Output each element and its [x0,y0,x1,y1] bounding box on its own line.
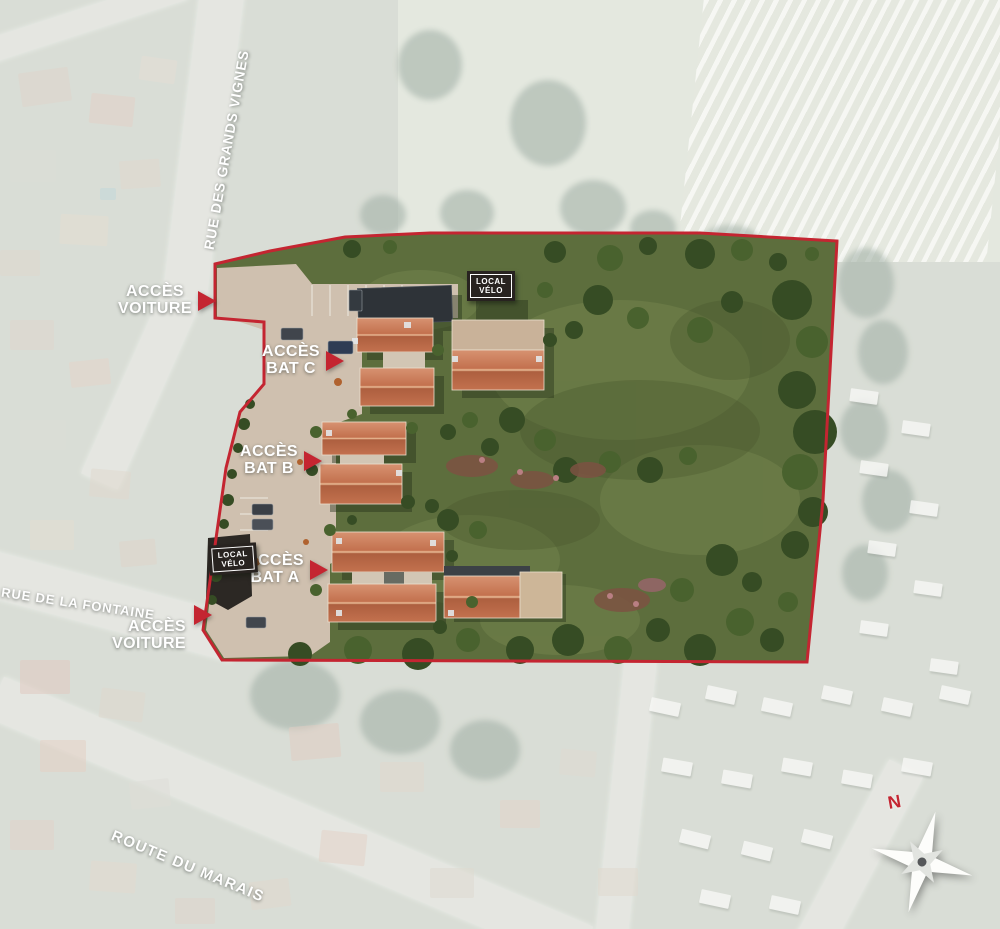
access-label-line2: BAT C [262,361,320,378]
bike-shed-label-line2: VÉLO [476,286,506,295]
access-label-line2: VOITURE [118,301,192,318]
access-arrow-icon [304,451,322,471]
bike-shed-sign-south: LOCAL VÉLO [208,542,258,576]
access-label-line1: ACCÈS [240,444,298,461]
access-voiture-north: ACCÈS VOITURE [118,284,216,318]
site-plan-map: RUE DES GRANDS VIGNES RUE DE LA FONTAINE… [0,0,1000,929]
bike-shed-label-line2: VÉLO [218,558,249,569]
compass-star-icon [856,790,988,922]
bike-shed-sign-north: LOCAL VÉLO [467,271,515,301]
project-site-rendering [0,0,1000,929]
bike-shed-label-line1: LOCAL [476,277,506,286]
access-bat-a: ACCÈS BAT A [246,553,328,587]
access-voiture-south: ACCÈS VOITURE [112,603,186,653]
access-label-line2: BAT B [240,461,298,478]
access-bat-b: ACCÈS BAT B [240,444,322,478]
access-arrow-icon [326,351,344,371]
access-label-line1: ACCÈS [118,284,192,301]
access-arrow-icon [310,560,328,580]
compass-rose: N [856,790,988,922]
access-label-line1: ACCÈS [262,344,320,361]
access-bat-c: ACCÈS BAT C [262,344,344,378]
access-label-line1: ACCÈS [112,619,186,636]
access-arrow-icon [194,605,212,625]
access-arrow-icon [198,291,216,311]
access-label-line2: VOITURE [112,636,186,653]
